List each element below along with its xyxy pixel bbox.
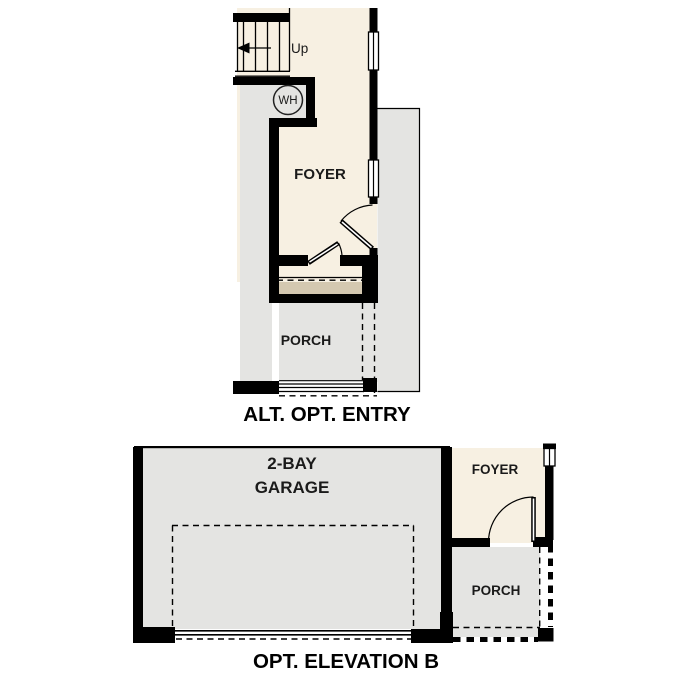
foyer-left-wall: [269, 118, 279, 303]
right-wall-mid: [370, 70, 378, 160]
garage-label-line1: 2-BAY: [267, 454, 317, 473]
foyer-bottom-wall-left: [450, 538, 490, 547]
garage-left-wall: [133, 447, 143, 643]
front-wall: [269, 294, 371, 303]
garage-foyer-divider-wall: [441, 447, 452, 612]
entry-step: [277, 278, 370, 296]
water-heater-label: WH: [278, 95, 297, 107]
porch-front-post: [363, 378, 377, 392]
porch-room-label: PORCH: [472, 583, 521, 598]
alt-opt-entry-caption: ALT. OPT. ENTRY: [243, 403, 411, 426]
garage-back-wall-line: [134, 446, 450, 448]
right-exterior-block: [378, 109, 420, 392]
floorplan-sheet: Up WH: [0, 0, 687, 687]
stairs-top-wall: [233, 13, 290, 22]
left-exterior-strip: [240, 84, 272, 384]
floorplan-drawing: Up WH: [0, 0, 687, 687]
stairs-up-label: Up: [291, 41, 308, 56]
garage-door-right-block: [411, 629, 453, 643]
right-wall-top: [370, 8, 378, 32]
foyer-right-wall: [545, 464, 554, 540]
garage-corner-block: [133, 627, 175, 643]
porch-room-label: PORCH: [281, 332, 332, 348]
opt-elevation-b-plan: 2-BAY GARAGE FOYER PORCH OPT. ELEVATION …: [133, 444, 556, 674]
foyer-room-label: FOYER: [472, 462, 519, 477]
right-wall-seg: [370, 197, 378, 204]
closet-top-wall: [233, 77, 313, 85]
step-tan-strip: [277, 282, 370, 295]
foyer-bottom-wall-left: [269, 255, 308, 266]
garage-floor: [135, 448, 447, 641]
porch-corner-block: [538, 628, 554, 642]
foyer-room-label: FOYER: [294, 166, 346, 183]
garage-label-line2: GARAGE: [255, 478, 330, 497]
alt-opt-entry-plan: Up WH: [233, 8, 420, 426]
porch-front-wall-left: [233, 381, 279, 394]
opt-elevation-b-caption: OPT. ELEVATION B: [253, 650, 439, 673]
